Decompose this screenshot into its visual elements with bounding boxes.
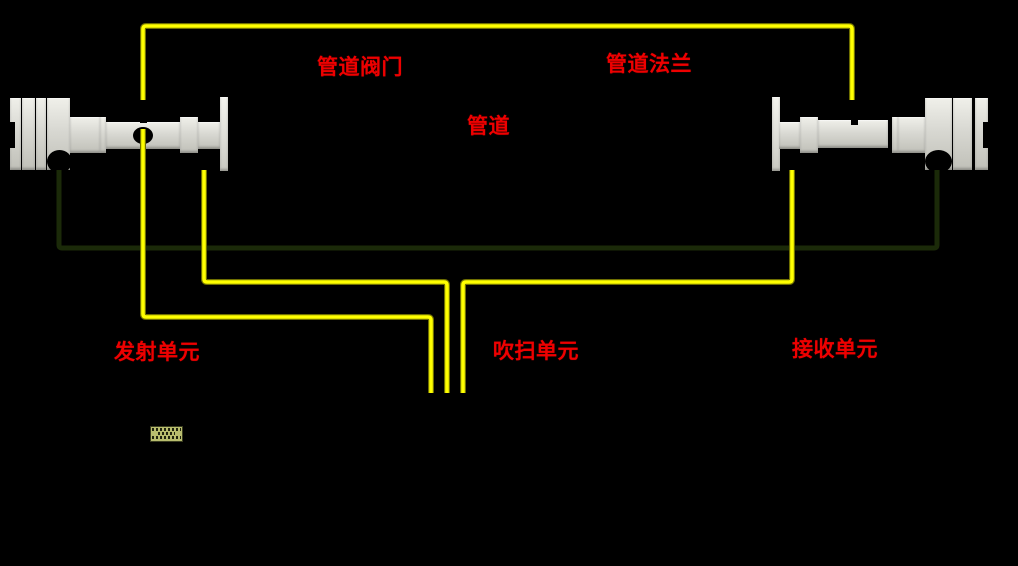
transmitter-flange <box>220 97 228 171</box>
transmitter-end-notch <box>10 122 15 148</box>
receiver-neck <box>779 122 800 149</box>
transmitter-tube-hole <box>133 127 153 144</box>
receiver-bottom-port <box>925 150 952 173</box>
receiver-reducer <box>898 117 925 153</box>
lcd-display <box>150 426 183 442</box>
transmitter-reducer <box>70 117 100 153</box>
label-pipe: 管道 <box>467 114 510 138</box>
transmitter-housing-segment <box>22 98 35 170</box>
receiver-collar <box>800 117 818 153</box>
lcd-pixel-row <box>152 428 181 431</box>
transmitter-collar <box>180 117 198 153</box>
transmitter-housing-segment <box>36 98 46 170</box>
label-pipe-flange: 管道法兰 <box>606 52 692 76</box>
label-purge-unit: 吹扫单元 <box>493 339 579 363</box>
lcd-pixel-row <box>158 432 175 435</box>
receiver-tube-top-notch <box>851 119 858 125</box>
receiver-housing-segment <box>953 98 972 170</box>
label-receive-unit: 接收单元 <box>792 337 878 361</box>
purge-tube-left-flange <box>204 170 447 393</box>
tubing-lines <box>0 0 1018 566</box>
transmitter-bottom-port <box>47 150 72 173</box>
signal-cable-green <box>59 170 937 248</box>
transmitter-neck <box>198 122 220 149</box>
receiver-end-notch <box>983 122 988 148</box>
label-pipe-valve: 管道阀门 <box>317 55 403 79</box>
purge-tube-top-loop <box>143 26 852 100</box>
label-transmit-unit: 发射单元 <box>114 340 200 364</box>
transmitter-tube-top-notch <box>140 117 147 123</box>
lcd-pixel-row <box>152 436 181 439</box>
diagram-stage: 管道阀门 管道法兰 管道 发射单元 吹扫单元 接收单元 <box>0 0 1018 566</box>
